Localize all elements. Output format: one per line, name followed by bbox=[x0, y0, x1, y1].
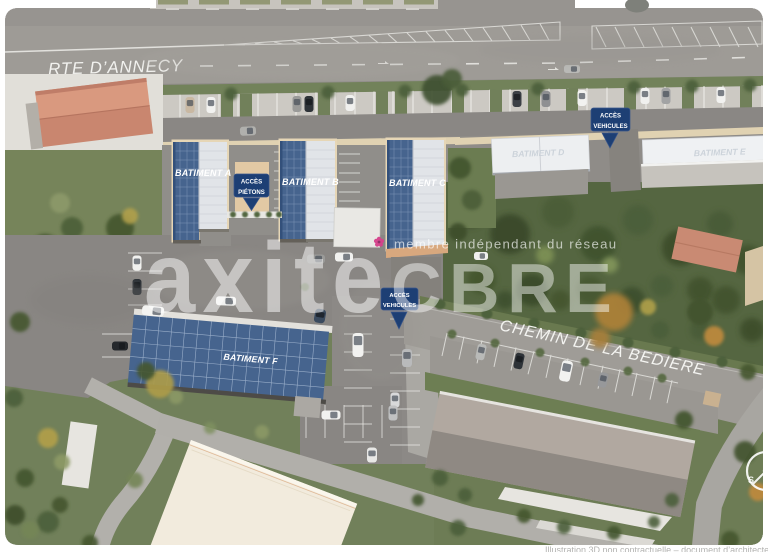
svg-text:BATIMENT D: BATIMENT D bbox=[512, 147, 565, 159]
svg-text:BATIMENT A: BATIMENT A bbox=[175, 168, 232, 178]
svg-text:axite: axite bbox=[144, 222, 390, 333]
svg-text:Illustration 3D non contractue: Illustration 3D non contractuelle – docu… bbox=[545, 545, 768, 552]
svg-text:CBRE: CBRE bbox=[391, 249, 619, 327]
svg-text:BATIMENT B: BATIMENT B bbox=[282, 177, 339, 187]
svg-text:PIÉTONS: PIÉTONS bbox=[238, 188, 265, 196]
svg-text:VEHICULES: VEHICULES bbox=[593, 124, 627, 130]
svg-text:BATIMENT C: BATIMENT C bbox=[389, 178, 446, 188]
svg-text:S: S bbox=[748, 475, 754, 485]
svg-text:ACCÈS: ACCÈS bbox=[600, 112, 621, 120]
svg-text:BATIMENT E: BATIMENT E bbox=[694, 146, 746, 158]
svg-text:ACCÈS: ACCÈS bbox=[241, 178, 262, 186]
